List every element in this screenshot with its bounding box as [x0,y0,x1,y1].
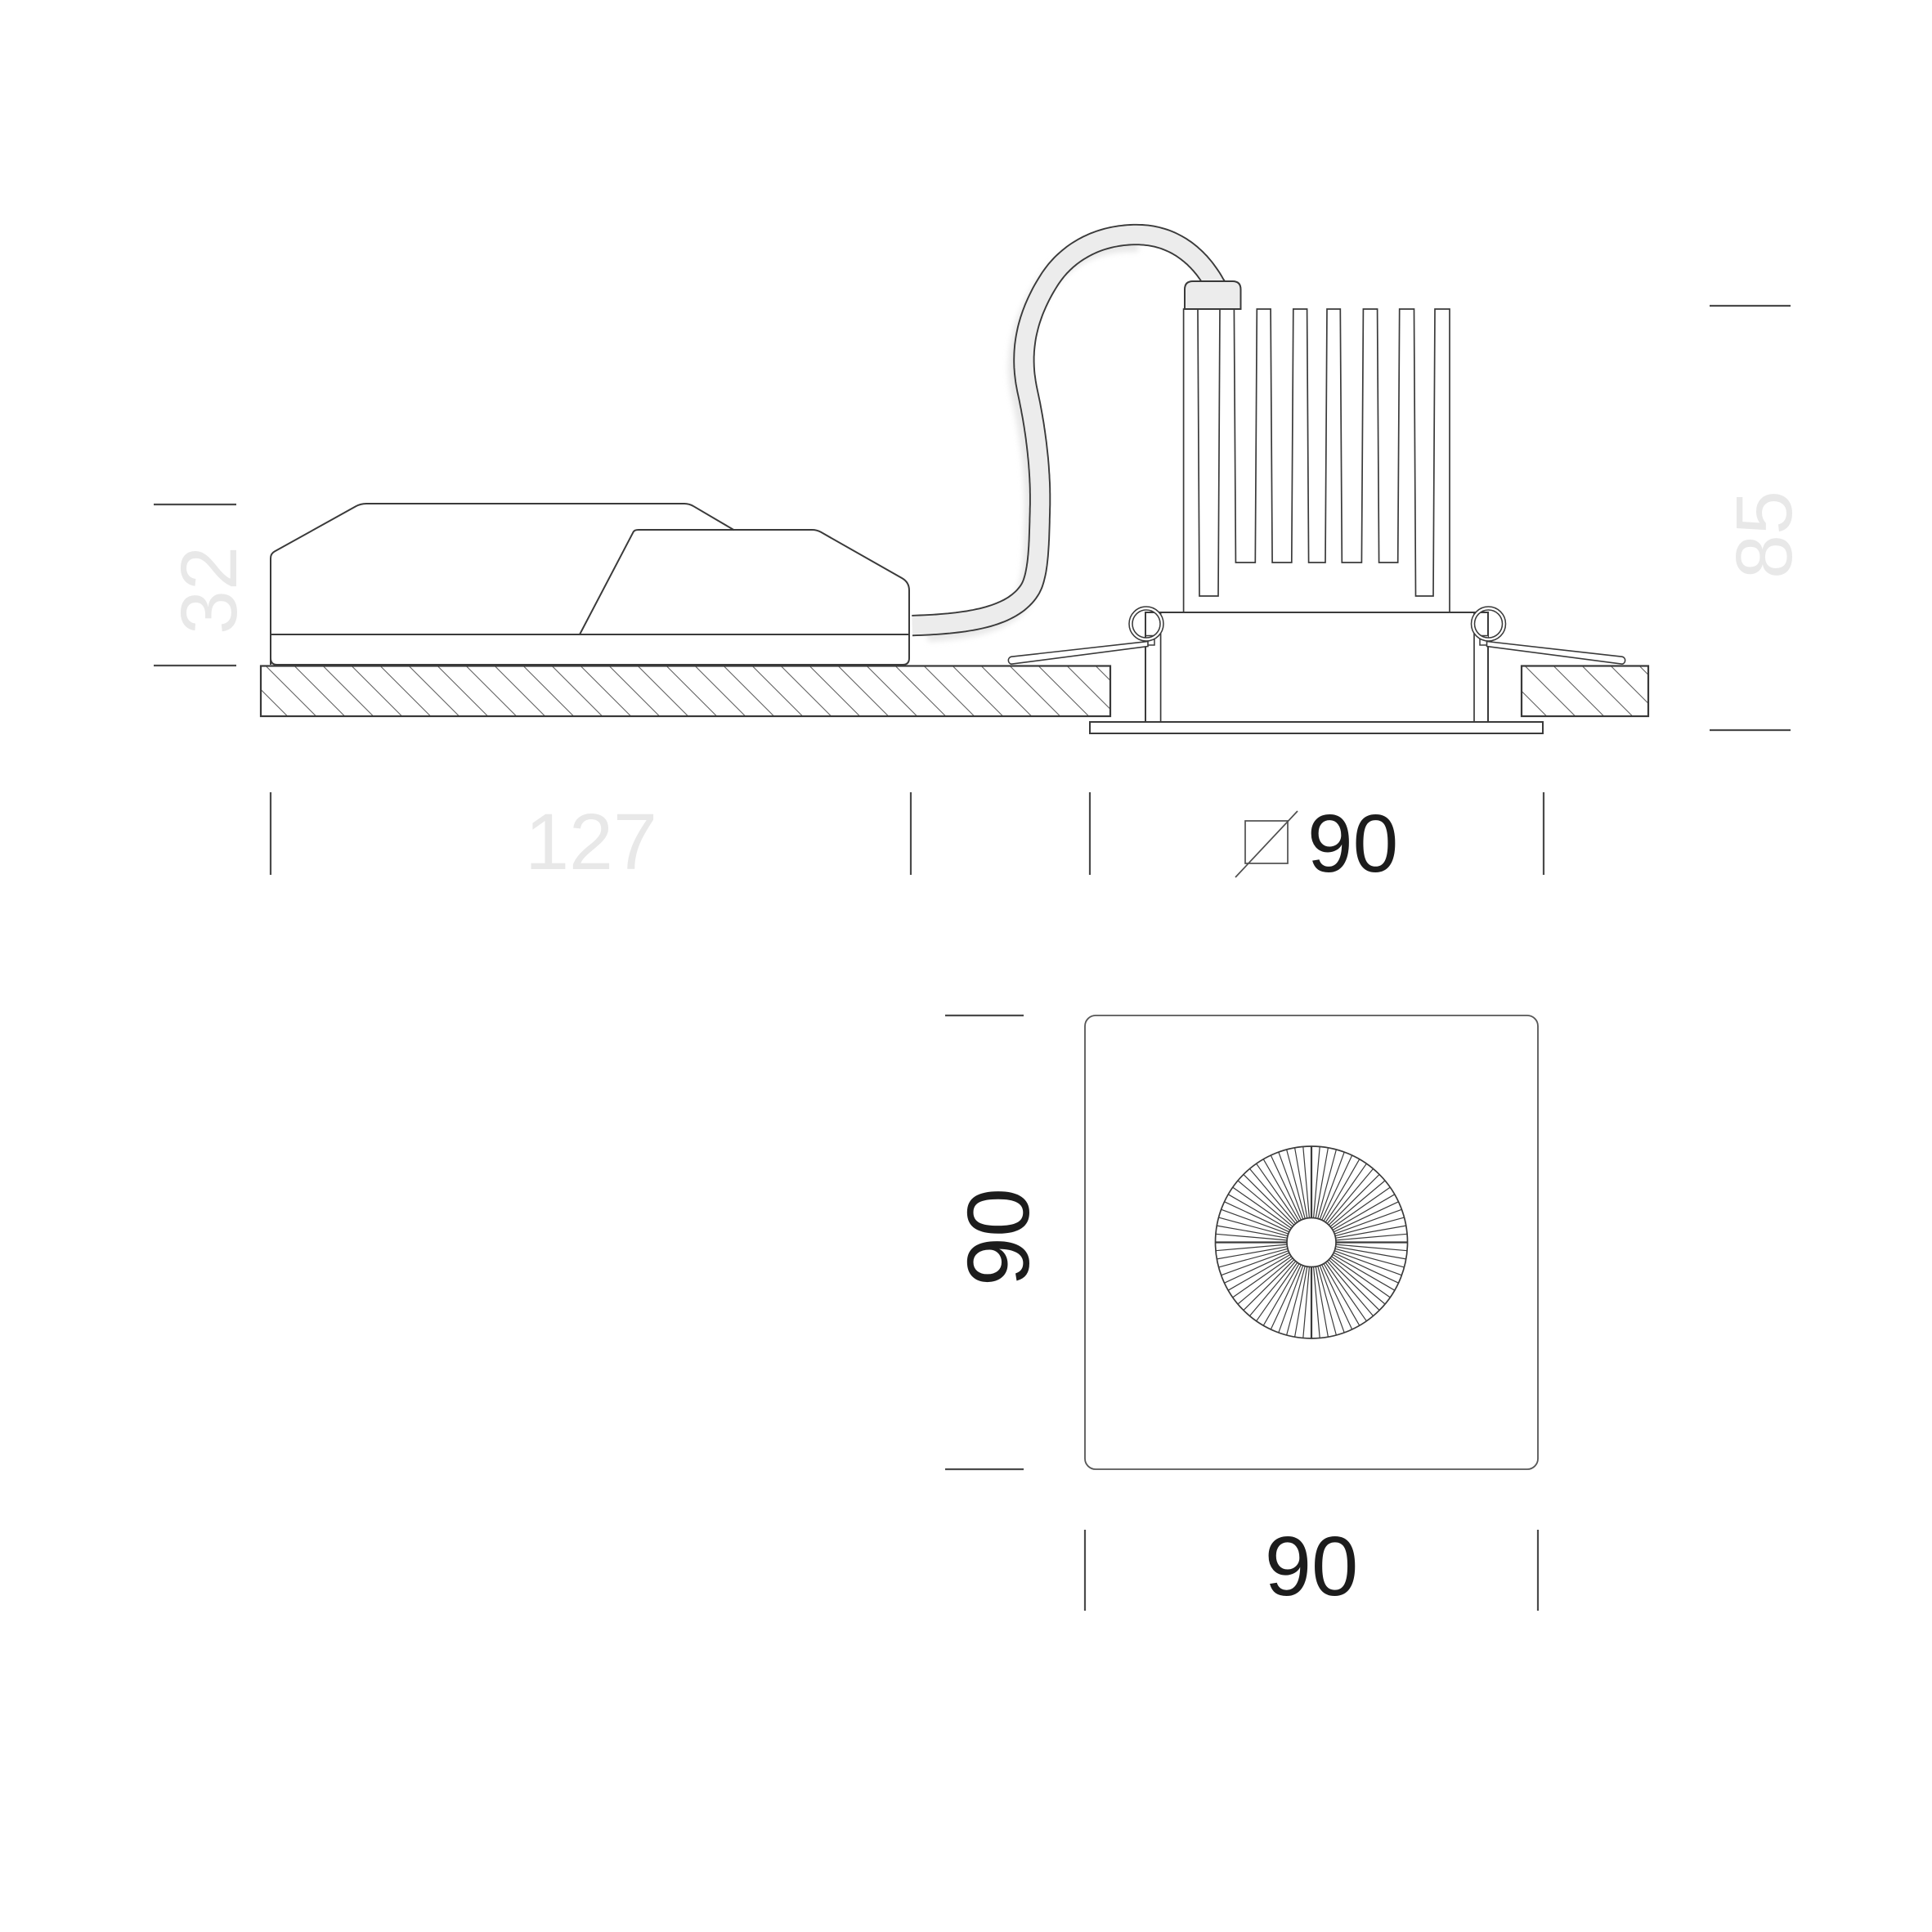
svg-text:32: 32 [164,546,253,634]
svg-text:90: 90 [1265,1519,1359,1613]
svg-text:85: 85 [1719,491,1809,579]
svg-text:127: 127 [525,797,657,886]
svg-text:90: 90 [1307,798,1398,890]
svg-text:90: 90 [948,1188,1047,1286]
